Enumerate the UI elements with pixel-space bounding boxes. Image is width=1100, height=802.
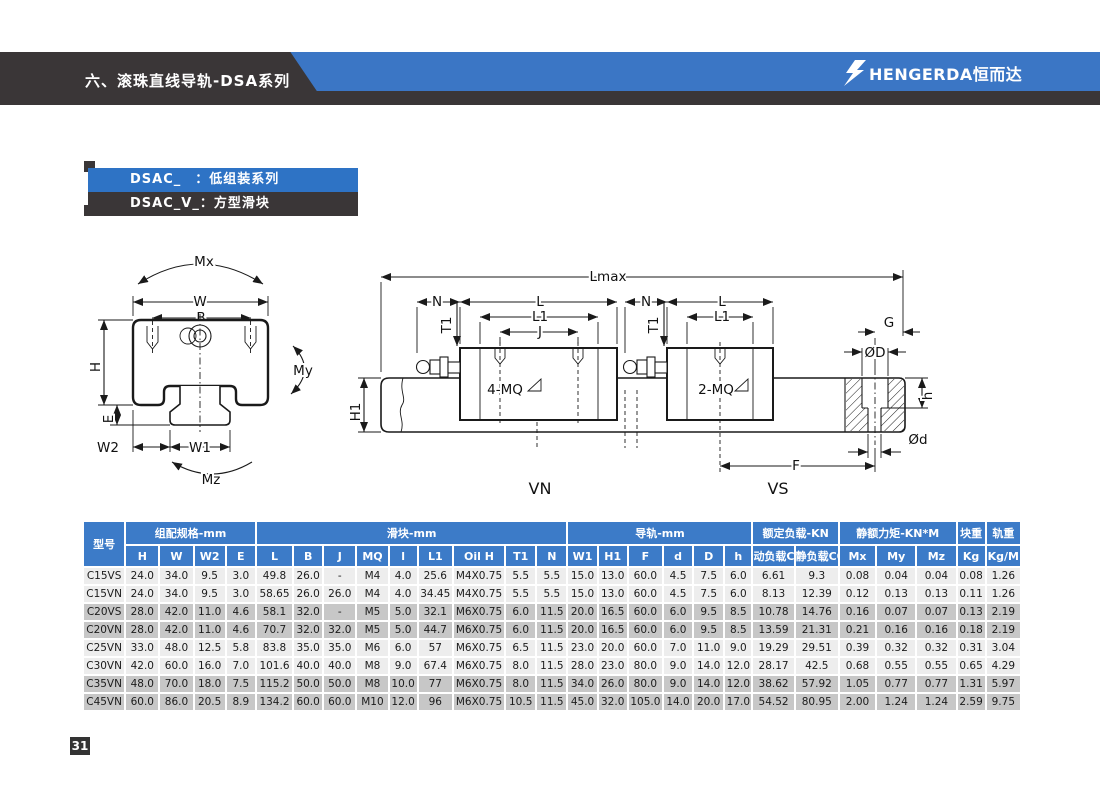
value-cell: 77 — [419, 676, 452, 692]
table-group-header: 导轨-mm — [568, 522, 751, 544]
table-sub-header: 动负载C — [753, 546, 793, 566]
value-cell: 1.24 — [917, 694, 955, 710]
value-cell: - — [324, 568, 355, 584]
value-cell: 4.29 — [987, 658, 1020, 674]
table-row: C20VS28.042.011.04.658.132.0-M55.032.1M6… — [84, 604, 1020, 620]
value-cell: 70.0 — [160, 676, 192, 692]
table-sub-header: D — [694, 546, 723, 566]
value-cell: 80.95 — [796, 694, 838, 710]
value-cell: 3.04 — [987, 640, 1020, 656]
value-cell: 2.19 — [987, 604, 1020, 620]
value-cell: M5 — [357, 622, 387, 638]
value-cell: 4.6 — [227, 604, 255, 620]
value-cell: 0.16 — [840, 604, 875, 620]
value-cell: 11.5 — [537, 640, 566, 656]
value-cell: 0.08 — [958, 568, 985, 584]
value-cell: 8.5 — [725, 604, 751, 620]
value-cell: 4.0 — [390, 586, 417, 602]
dim-label-l1-left: L1 — [532, 309, 548, 325]
value-cell: 0.04 — [917, 568, 955, 584]
value-cell: 6.0 — [390, 640, 417, 656]
value-cell: 18.0 — [195, 676, 225, 692]
dim-label-lmax: Lmax — [590, 269, 627, 285]
value-cell: 24.0 — [126, 568, 158, 584]
value-cell: M5 — [357, 604, 387, 620]
table-group-header: 额定负载-KN — [753, 522, 837, 544]
value-cell: 3.0 — [227, 568, 255, 584]
value-cell: 0.16 — [877, 622, 915, 638]
value-cell: 25.6 — [419, 568, 452, 584]
value-cell: M10 — [357, 694, 387, 710]
value-cell: 5.5 — [537, 586, 566, 602]
value-cell: 0.77 — [877, 676, 915, 692]
dim-label-l-right: L — [718, 294, 726, 310]
value-cell: 5.0 — [390, 604, 417, 620]
value-cell: 48.0 — [160, 640, 192, 656]
value-cell: 105.0 — [629, 694, 662, 710]
value-cell: 0.65 — [958, 658, 985, 674]
table-sub-header: L — [257, 546, 292, 566]
model-cell: C20VN — [84, 622, 124, 638]
value-cell: 32.1 — [419, 604, 452, 620]
table-sub-header: F — [629, 546, 662, 566]
table-sub-header: Kg — [958, 546, 985, 566]
value-cell: 8.5 — [725, 622, 751, 638]
dim-label-mz: Mz — [202, 472, 221, 488]
table-sub-header: My — [877, 546, 915, 566]
value-cell: 4.5 — [664, 586, 692, 602]
value-cell: 10.0 — [390, 676, 417, 692]
value-cell: M6X0.75 — [454, 658, 504, 674]
value-cell: 57 — [419, 640, 452, 656]
value-cell: 1.31 — [958, 676, 985, 692]
table-sub-header: Oil H — [454, 546, 504, 566]
table-sub-header: W — [160, 546, 192, 566]
value-cell: 40.0 — [324, 658, 355, 674]
value-cell: 0.13 — [917, 586, 955, 602]
value-cell: 7.5 — [694, 568, 723, 584]
value-cell: 7.5 — [227, 676, 255, 692]
value-cell: 6.0 — [506, 622, 535, 638]
value-cell: 12.5 — [195, 640, 225, 656]
value-cell: 0.16 — [917, 622, 955, 638]
value-cell: 34.0 — [568, 676, 596, 692]
value-cell: 20.5 — [195, 694, 225, 710]
dim-label-my: My — [293, 363, 313, 379]
value-cell: 45.0 — [568, 694, 596, 710]
table-sub-header: H — [126, 546, 158, 566]
value-cell: 60.0 — [629, 622, 662, 638]
model-cell: C25VN — [84, 640, 124, 656]
value-cell: 24.0 — [126, 586, 158, 602]
dim-label-j: J — [537, 324, 542, 340]
value-cell: 23.0 — [599, 658, 627, 674]
value-cell: 1.26 — [987, 568, 1020, 584]
value-cell: 16.5 — [599, 604, 627, 620]
value-cell: 134.2 — [257, 694, 292, 710]
table-sub-header: N — [537, 546, 566, 566]
table-sub-header: E — [227, 546, 255, 566]
value-cell: M6 — [357, 640, 387, 656]
value-cell: 10.5 — [506, 694, 535, 710]
value-cell: 0.13 — [958, 604, 985, 620]
value-cell: 12.0 — [725, 658, 751, 674]
value-cell: 5.5 — [506, 568, 535, 584]
value-cell: 15.0 — [568, 568, 596, 584]
value-cell: 2.59 — [958, 694, 985, 710]
value-cell: 23.0 — [568, 640, 596, 656]
value-cell: 20.0 — [568, 604, 596, 620]
dim-label-g: G — [884, 315, 894, 331]
spec-table: 型号组配规格-mm滑块-mm导轨-mm额定负载-KN静额力矩-KN*M块重轨重H… — [82, 520, 1022, 712]
value-cell: 11.5 — [537, 658, 566, 674]
value-cell: M6X0.75 — [454, 604, 504, 620]
value-cell: 42.0 — [126, 658, 158, 674]
value-cell: 9.0 — [664, 658, 692, 674]
dim-label-h1: H1 — [348, 403, 364, 422]
value-cell: 60.0 — [629, 640, 662, 656]
value-cell: 5.8 — [227, 640, 255, 656]
value-cell: 5.5 — [537, 568, 566, 584]
value-cell: 58.65 — [257, 586, 292, 602]
dim-label-f: F — [792, 458, 800, 474]
value-cell: 9.0 — [664, 676, 692, 692]
value-cell: 16.0 — [195, 658, 225, 674]
value-cell: 54.52 — [753, 694, 793, 710]
value-cell: 7.0 — [664, 640, 692, 656]
value-cell: 1.05 — [840, 676, 875, 692]
table-sub-header: l — [390, 546, 417, 566]
value-cell: 96 — [419, 694, 452, 710]
value-cell: 15.0 — [568, 586, 596, 602]
value-cell: 60.0 — [629, 604, 662, 620]
value-cell: 3.0 — [227, 586, 255, 602]
value-cell: M6X0.75 — [454, 622, 504, 638]
label-2-mq: 2-MQ — [698, 382, 734, 398]
value-cell: 5.97 — [987, 676, 1020, 692]
dim-label-w1: W1 — [189, 440, 211, 456]
value-cell: 9.75 — [987, 694, 1020, 710]
cross-section-view: Mx W B H E W2 W1 — [88, 254, 313, 488]
value-cell: M4X0.75 — [454, 568, 504, 584]
table-sub-header: 静负载C0 — [796, 546, 838, 566]
value-cell: 34.45 — [419, 586, 452, 602]
table-group-header: 静额力矩-KN*M — [840, 522, 956, 544]
table-row: C20VN28.042.011.04.670.732.032.0M55.044.… — [84, 622, 1020, 638]
value-cell: 28.0 — [568, 658, 596, 674]
dim-label-t1-left: T1 — [439, 317, 455, 335]
table-row: C45VN60.086.020.58.9134.260.060.0M1012.0… — [84, 694, 1020, 710]
value-cell: 70.7 — [257, 622, 292, 638]
table-row: C15VS24.034.09.53.049.826.0-M44.025.6M4X… — [84, 568, 1020, 584]
table-sub-header: B — [294, 546, 322, 566]
value-cell: 13.0 — [599, 568, 627, 584]
value-cell: 115.2 — [257, 676, 292, 692]
dim-label-n-left: N — [432, 294, 442, 310]
value-cell: 7.5 — [694, 586, 723, 602]
value-cell: 14.0 — [664, 694, 692, 710]
value-cell: 20.0 — [599, 640, 627, 656]
table-sub-header: MQ — [357, 546, 387, 566]
value-cell: 50.0 — [324, 676, 355, 692]
value-cell: M4 — [357, 568, 387, 584]
dim-label-h: H — [88, 362, 104, 372]
value-cell: 5.0 — [390, 622, 417, 638]
value-cell: M6X0.75 — [454, 676, 504, 692]
value-cell: 0.12 — [840, 586, 875, 602]
value-cell: 34.0 — [160, 568, 192, 584]
dim-label-l1-right: L1 — [714, 309, 730, 325]
value-cell: 9.5 — [195, 586, 225, 602]
value-cell: 4.0 — [390, 568, 417, 584]
model-cell: C20VS — [84, 604, 124, 620]
value-cell: 12.39 — [796, 586, 838, 602]
value-cell: 14.0 — [694, 658, 723, 674]
value-cell: 35.0 — [324, 640, 355, 656]
view-label-vs: VS — [767, 479, 788, 498]
value-cell: 11.0 — [195, 604, 225, 620]
value-cell: M8 — [357, 676, 387, 692]
value-cell: 32.0 — [599, 694, 627, 710]
value-cell: 13.59 — [753, 622, 793, 638]
value-cell: 60.0 — [629, 568, 662, 584]
dim-label-phi-d-small: Ød — [908, 432, 927, 448]
value-cell: 7.0 — [227, 658, 255, 674]
value-cell: 11.5 — [537, 604, 566, 620]
dim-label-phi-d-big: ØD — [864, 345, 885, 361]
value-cell: 16.5 — [599, 622, 627, 638]
table-sub-header: Mx — [840, 546, 875, 566]
value-cell: 58.1 — [257, 604, 292, 620]
table-row: C30VN42.060.016.07.0101.640.040.0M89.067… — [84, 658, 1020, 674]
value-cell: 6.0 — [506, 604, 535, 620]
table-sub-header: L1 — [419, 546, 452, 566]
value-cell: 9.0 — [725, 640, 751, 656]
value-cell: 1.24 — [877, 694, 915, 710]
value-cell: M6X0.75 — [454, 694, 504, 710]
value-cell: 10.78 — [753, 604, 793, 620]
value-cell: 50.0 — [294, 676, 322, 692]
value-cell: 0.55 — [877, 658, 915, 674]
value-cell: 42.0 — [160, 622, 192, 638]
view-label-vn: VN — [529, 479, 552, 498]
table-sub-header: J — [324, 546, 355, 566]
value-cell: 12.0 — [725, 676, 751, 692]
value-cell: 32.0 — [294, 604, 322, 620]
label-4-mq: 4-MQ — [487, 382, 523, 398]
table-group-header: 组配规格-mm — [126, 522, 255, 544]
value-cell: 11.0 — [195, 622, 225, 638]
table-group-header: 轨重 — [987, 522, 1020, 544]
value-cell: 6.0 — [664, 604, 692, 620]
table-sub-header: Mz — [917, 546, 955, 566]
table-sub-header: T1 — [506, 546, 535, 566]
value-cell: 0.77 — [917, 676, 955, 692]
value-cell: 6.5 — [506, 640, 535, 656]
value-cell: 40.0 — [294, 658, 322, 674]
value-cell: 26.0 — [294, 586, 322, 602]
table-sub-header: H1 — [599, 546, 627, 566]
value-cell: 49.8 — [257, 568, 292, 584]
value-cell: 42.0 — [160, 604, 192, 620]
value-cell: 20.0 — [694, 694, 723, 710]
value-cell: 44.7 — [419, 622, 452, 638]
value-cell: 1.26 — [987, 586, 1020, 602]
value-cell: 28.0 — [126, 622, 158, 638]
value-cell: 60.0 — [160, 658, 192, 674]
value-cell: 26.0 — [324, 586, 355, 602]
value-cell: 101.6 — [257, 658, 292, 674]
value-cell: M4 — [357, 586, 387, 602]
value-cell: 26.0 — [294, 568, 322, 584]
value-cell: 12.0 — [390, 694, 417, 710]
dim-label-w2: W2 — [97, 440, 119, 456]
value-cell: 21.31 — [796, 622, 838, 638]
table-sub-header: W2 — [195, 546, 225, 566]
value-cell: - — [324, 604, 355, 620]
value-cell: 32.0 — [294, 622, 322, 638]
value-cell: 11.5 — [537, 622, 566, 638]
value-cell: 0.13 — [877, 586, 915, 602]
value-cell: 48.0 — [126, 676, 158, 692]
dim-label-e: E — [101, 415, 117, 424]
value-cell: M6X0.75 — [454, 640, 504, 656]
value-cell: 0.68 — [840, 658, 875, 674]
value-cell: 8.0 — [506, 676, 535, 692]
dim-label-mx: Mx — [194, 254, 214, 270]
value-cell: 14.0 — [694, 676, 723, 692]
value-cell: 60.0 — [126, 694, 158, 710]
value-cell: 6.0 — [664, 622, 692, 638]
value-cell: 0.07 — [877, 604, 915, 620]
value-cell: 0.04 — [877, 568, 915, 584]
value-cell: 80.0 — [629, 676, 662, 692]
value-cell: 4.5 — [664, 568, 692, 584]
dim-label-h-counterbore: h — [920, 392, 936, 401]
model-cell: C15VS — [84, 568, 124, 584]
value-cell: M4X0.75 — [454, 586, 504, 602]
value-cell: 35.0 — [294, 640, 322, 656]
value-cell: 0.55 — [917, 658, 955, 674]
value-cell: 0.07 — [917, 604, 955, 620]
value-cell: 86.0 — [160, 694, 192, 710]
value-cell: 11.5 — [537, 694, 566, 710]
value-cell: 0.21 — [840, 622, 875, 638]
value-cell: 0.32 — [877, 640, 915, 656]
value-cell: 9.0 — [390, 658, 417, 674]
value-cell: 0.11 — [958, 586, 985, 602]
value-cell: 9.5 — [694, 622, 723, 638]
value-cell: 20.0 — [568, 622, 596, 638]
model-cell: C45VN — [84, 694, 124, 710]
table-sub-header: Kg/M — [987, 546, 1020, 566]
value-cell: 0.08 — [840, 568, 875, 584]
value-cell: 11.0 — [694, 640, 723, 656]
value-cell: 34.0 — [160, 586, 192, 602]
table-sub-header: W1 — [568, 546, 596, 566]
dim-label-l-left: L — [536, 294, 544, 310]
value-cell: 14.76 — [796, 604, 838, 620]
dim-label-w: W — [193, 294, 206, 310]
value-cell: 6.61 — [753, 568, 793, 584]
model-cell: C15VN — [84, 586, 124, 602]
value-cell: 0.39 — [840, 640, 875, 656]
value-cell: M8 — [357, 658, 387, 674]
value-cell: 2.00 — [840, 694, 875, 710]
col-header-model: 型号 — [84, 522, 124, 566]
value-cell: 5.5 — [506, 586, 535, 602]
value-cell: 80.0 — [629, 658, 662, 674]
table-sub-header: d — [664, 546, 692, 566]
value-cell: 6.0 — [725, 568, 751, 584]
value-cell: 33.0 — [126, 640, 158, 656]
value-cell: 28.0 — [126, 604, 158, 620]
value-cell: 11.5 — [537, 676, 566, 692]
table-row: C35VN48.070.018.07.5115.250.050.0M810.07… — [84, 676, 1020, 692]
value-cell: 8.0 — [506, 658, 535, 674]
side-view: 4-MQ 2-MQ Lmax N L L1 J — [348, 269, 936, 498]
value-cell: 0.18 — [958, 622, 985, 638]
value-cell: 19.29 — [753, 640, 793, 656]
value-cell: 6.0 — [725, 586, 751, 602]
value-cell: 60.0 — [294, 694, 322, 710]
value-cell: 60.0 — [324, 694, 355, 710]
value-cell: 9.3 — [796, 568, 838, 584]
value-cell: 26.0 — [599, 676, 627, 692]
model-cell: C35VN — [84, 676, 124, 692]
value-cell: 9.5 — [195, 568, 225, 584]
table-group-header: 滑块-mm — [257, 522, 567, 544]
table-group-header: 块重 — [958, 522, 985, 544]
value-cell: 57.92 — [796, 676, 838, 692]
value-cell: 13.0 — [599, 586, 627, 602]
value-cell: 4.6 — [227, 622, 255, 638]
dim-label-t1-right: T1 — [646, 317, 662, 335]
value-cell: 8.13 — [753, 586, 793, 602]
value-cell: 42.5 — [796, 658, 838, 674]
value-cell: 29.51 — [796, 640, 838, 656]
dim-label-n-right: N — [641, 294, 651, 310]
table-sub-header: h — [725, 546, 751, 566]
value-cell: 9.5 — [694, 604, 723, 620]
value-cell: 2.19 — [987, 622, 1020, 638]
value-cell: 8.9 — [227, 694, 255, 710]
table-row: C15VN24.034.09.53.058.6526.026.0M44.034.… — [84, 586, 1020, 602]
value-cell: 38.62 — [753, 676, 793, 692]
value-cell: 32.0 — [324, 622, 355, 638]
table-row: C25VN33.048.012.55.883.835.035.0M66.057M… — [84, 640, 1020, 656]
model-cell: C30VN — [84, 658, 124, 674]
value-cell: 60.0 — [629, 586, 662, 602]
value-cell: 67.4 — [419, 658, 452, 674]
value-cell: 0.31 — [958, 640, 985, 656]
value-cell: 17.0 — [725, 694, 751, 710]
value-cell: 28.17 — [753, 658, 793, 674]
page-number: 31 — [70, 737, 90, 755]
value-cell: 83.8 — [257, 640, 292, 656]
value-cell: 0.32 — [917, 640, 955, 656]
